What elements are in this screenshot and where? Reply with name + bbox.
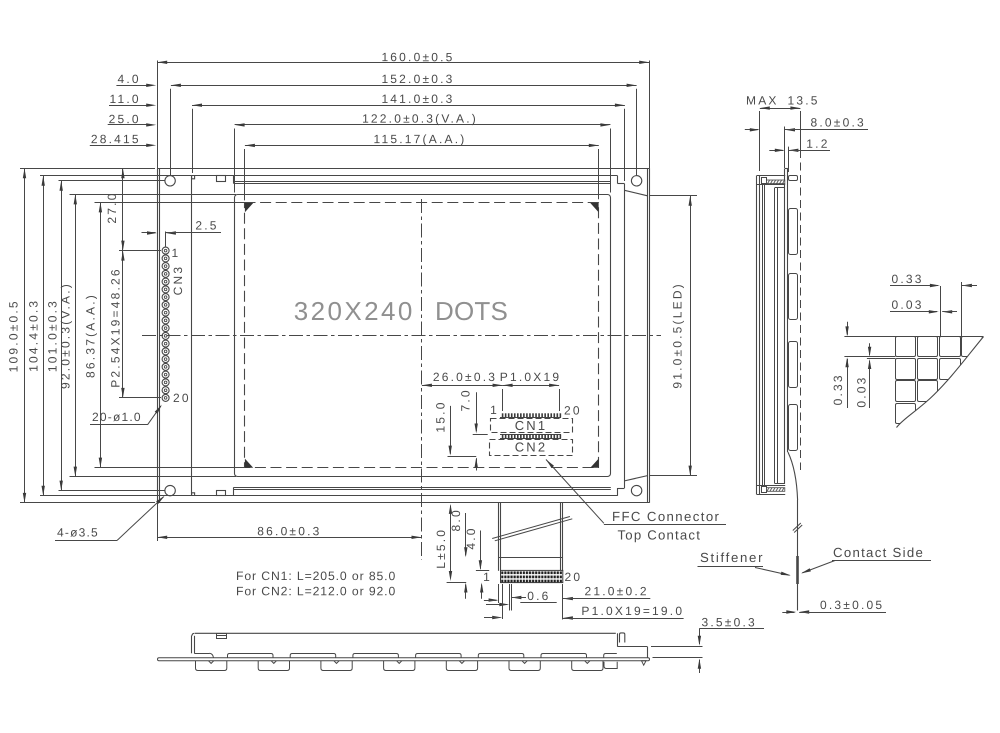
svg-text:20: 20 <box>564 570 582 584</box>
svg-text:28.415: 28.415 <box>91 132 141 146</box>
svg-text:320X240: 320X240 <box>294 296 415 326</box>
svg-text:0.6: 0.6 <box>527 589 550 603</box>
svg-text:115.17(A.A.): 115.17(A.A.) <box>374 132 467 146</box>
svg-text:26.0±0.3: 26.0±0.3 <box>433 370 497 384</box>
svg-text:0.3±0.05: 0.3±0.05 <box>820 598 884 612</box>
svg-text:P1.0X19=19.0: P1.0X19=19.0 <box>581 604 684 618</box>
svg-text:L±5.0: L±5.0 <box>434 528 448 569</box>
svg-text:86.0±0.3: 86.0±0.3 <box>257 524 321 538</box>
svg-text:CN3: CN3 <box>171 265 185 296</box>
svg-text:92.0±0.3(V.A.): 92.0±0.3(V.A.) <box>58 282 72 389</box>
svg-text:7.0: 7.0 <box>459 388 473 411</box>
svg-text:0.33: 0.33 <box>831 373 845 405</box>
svg-text:Stiffener: Stiffener <box>700 550 764 565</box>
svg-text:1: 1 <box>490 403 499 417</box>
svg-text:86.37(A.A.): 86.37(A.A.) <box>84 293 98 378</box>
svg-text:21.0±0.2: 21.0±0.2 <box>584 584 648 598</box>
svg-text:CN2: CN2 <box>515 439 548 454</box>
svg-text:CN1: CN1 <box>515 418 548 433</box>
svg-text:2.5: 2.5 <box>195 218 218 232</box>
svg-text:109.0±0.5: 109.0±0.5 <box>7 299 21 372</box>
svg-text:For CN2: L=212.0 or 92.0: For CN2: L=212.0 or 92.0 <box>236 584 396 598</box>
svg-text:101.0±0.3: 101.0±0.3 <box>45 299 59 372</box>
svg-text:0.33: 0.33 <box>891 272 923 286</box>
svg-text:20-ø1.0: 20-ø1.0 <box>92 410 142 424</box>
svg-text:27.0: 27.0 <box>105 191 119 223</box>
svg-text:104.4±0.3: 104.4±0.3 <box>27 299 41 372</box>
svg-text:4.0: 4.0 <box>118 72 141 86</box>
svg-text:8.0: 8.0 <box>449 508 463 531</box>
svg-text:13.5: 13.5 <box>787 94 819 108</box>
svg-text:152.0±0.3: 152.0±0.3 <box>381 72 454 86</box>
svg-text:160.0±0.5: 160.0±0.5 <box>381 50 454 64</box>
svg-text:FFC Connector: FFC Connector <box>612 509 720 524</box>
svg-text:141.0±0.3: 141.0±0.3 <box>381 92 454 106</box>
svg-text:Contact Side: Contact Side <box>833 545 924 560</box>
svg-text:3.5±0.3: 3.5±0.3 <box>701 615 756 629</box>
svg-text:20: 20 <box>173 391 191 405</box>
svg-text:DOTS: DOTS <box>435 296 508 326</box>
svg-text:11.0: 11.0 <box>110 92 141 106</box>
svg-text:4-ø3.5: 4-ø3.5 <box>57 526 99 540</box>
svg-text:P1.0X19: P1.0X19 <box>500 370 561 384</box>
svg-text:4.0: 4.0 <box>464 526 478 549</box>
svg-text:91.0±0.5(LED): 91.0±0.5(LED) <box>671 282 685 389</box>
svg-text:1: 1 <box>171 246 180 260</box>
svg-text:122.0±0.3(V.A.): 122.0±0.3(V.A.) <box>362 112 478 126</box>
svg-text:8.0±0.3: 8.0±0.3 <box>810 116 865 130</box>
svg-text:0.03: 0.03 <box>854 376 868 408</box>
svg-text:P2.54X19=48.26: P2.54X19=48.26 <box>108 267 122 388</box>
svg-text:Top Contact: Top Contact <box>617 528 701 543</box>
svg-text:1: 1 <box>483 570 492 584</box>
svg-text:20: 20 <box>564 404 582 418</box>
svg-text:0.03: 0.03 <box>891 298 923 312</box>
svg-text:1.2: 1.2 <box>806 137 829 151</box>
svg-text:15.0: 15.0 <box>434 400 448 432</box>
svg-text:MAX: MAX <box>746 94 779 108</box>
svg-text:For CN1: L=205.0 or 85.0: For CN1: L=205.0 or 85.0 <box>236 569 396 583</box>
